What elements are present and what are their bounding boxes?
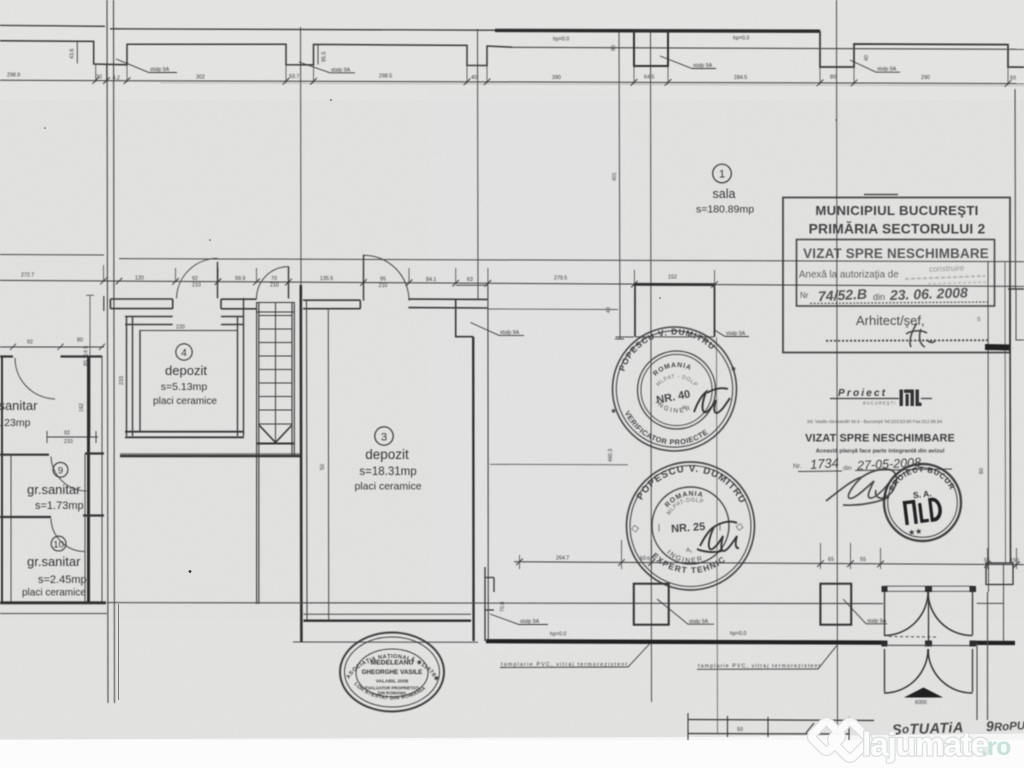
svg-text:lajumate: lajumate (862, 727, 989, 764)
svg-text:.ro: .ro (981, 733, 1011, 761)
